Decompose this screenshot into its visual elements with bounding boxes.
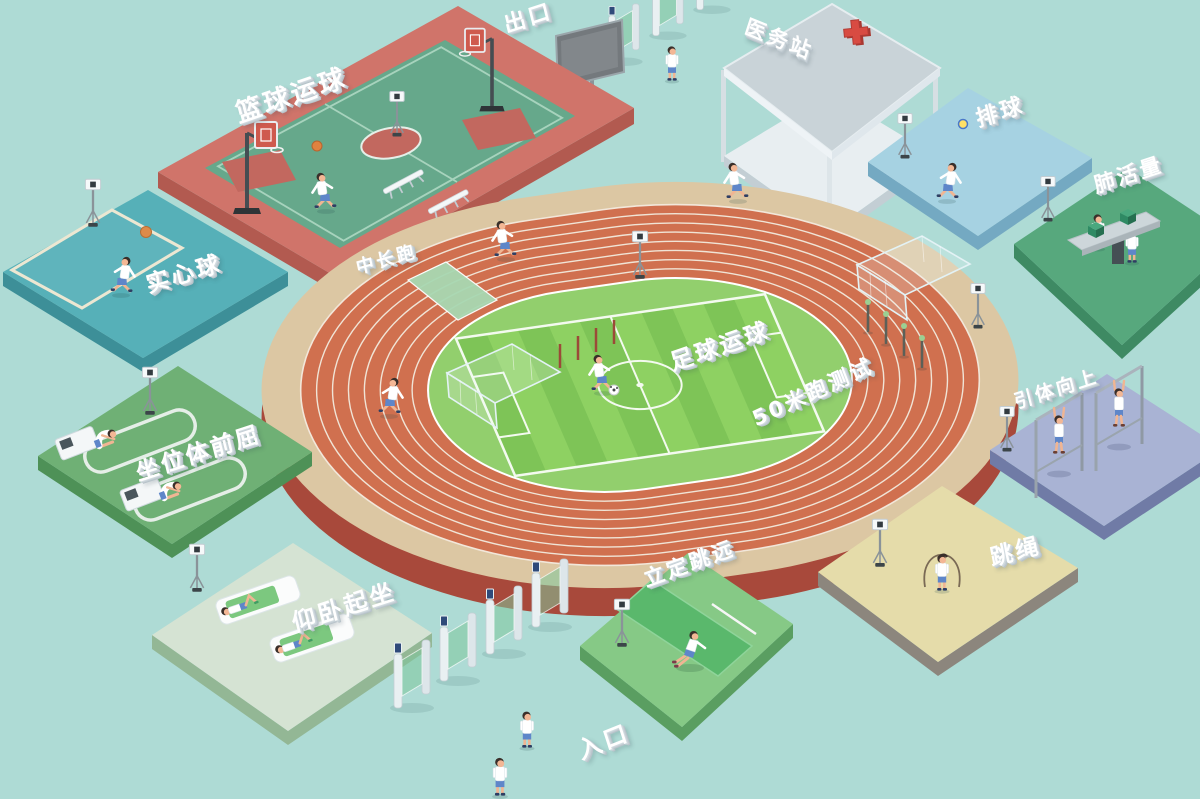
sports-test-ground-illustration: 篮球运球 出口 医务站 排球 肺活量 引体向上 跳绳 立定跳远 仰卧起坐 入口 …: [0, 0, 1200, 799]
